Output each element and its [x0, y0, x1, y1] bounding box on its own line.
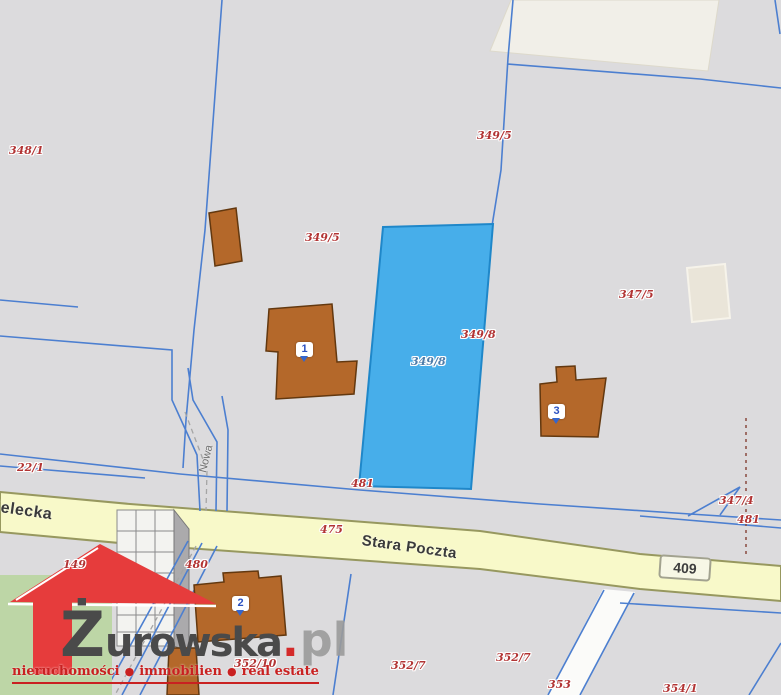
parcel-label: 481 [351, 477, 374, 490]
bullet-icon: ● [227, 666, 237, 677]
parcel-label: 22/1 [17, 461, 44, 474]
brand-dot: . [282, 616, 299, 667]
parcel-label: 349/8 [461, 328, 496, 341]
brand-tld: pl [300, 613, 349, 667]
brand-tagline: nieruchomości ● immobilien ● real estate [12, 664, 319, 684]
cadastral-map: 348/1 349/5 349/5 349/8 349/8 347/5 22/1… [0, 0, 781, 695]
brand-name: urowska [105, 620, 281, 666]
map-graphics [0, 0, 781, 695]
parcel-label: 347/4 [719, 494, 754, 507]
beige-building [687, 264, 730, 322]
route-badge-409: 409 [658, 554, 712, 582]
tagline-item: real estate [242, 664, 319, 679]
outbuilding [209, 208, 242, 266]
parcel-label: 149 [63, 558, 86, 571]
parcel-label: 349/5 [305, 231, 340, 244]
parcel-label: 353 [548, 678, 571, 691]
parcel-label: 352/7 [391, 659, 426, 672]
building-3 [540, 366, 606, 437]
brand-logo-text: Żurowska.pl [60, 598, 348, 671]
parcel-label: 352/7 [496, 651, 531, 664]
building-marker-3[interactable]: 3 [548, 404, 565, 419]
tagline-item: nieruchomości [12, 664, 120, 679]
building-marker-1[interactable]: 1 [296, 342, 313, 357]
parcel-label: 475 [320, 523, 343, 536]
parcel-label: 349/5 [477, 129, 512, 142]
parcel-label: 349/8 [411, 355, 446, 368]
parcel-label: 348/1 [9, 144, 44, 157]
cream-parcel [490, 0, 719, 71]
tagline-item: immobilien [139, 664, 222, 679]
parcel-label: 347/5 [619, 288, 654, 301]
parcel-label: 480 [185, 558, 208, 571]
parcel-label: 354/1 [663, 682, 698, 695]
brand-initial: Ż [60, 598, 105, 671]
bullet-icon: ● [125, 666, 135, 677]
parcel-label: 481 [737, 513, 760, 526]
